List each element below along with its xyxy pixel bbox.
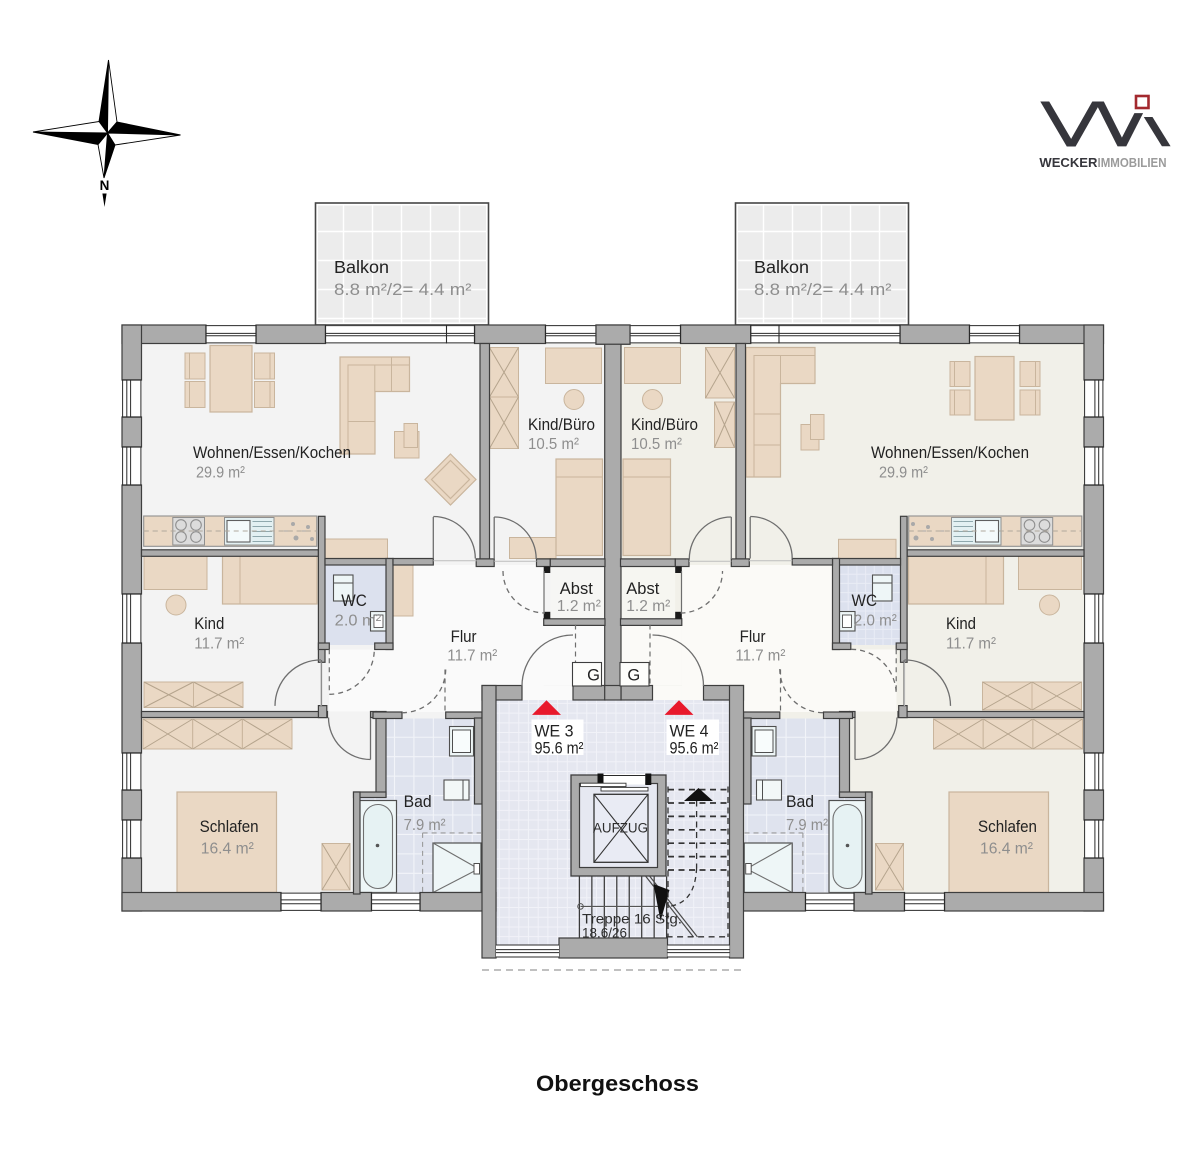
svg-text:AUFZUG: AUFZUG bbox=[593, 821, 648, 836]
svg-text:11.7 m²: 11.7 m² bbox=[194, 636, 245, 653]
svg-text:Schlafen: Schlafen bbox=[978, 818, 1037, 836]
svg-text:Wohnen/Essen/Kochen: Wohnen/Essen/Kochen bbox=[871, 444, 1029, 462]
svg-text:WC: WC bbox=[341, 592, 367, 610]
svg-text:Kind/Büro: Kind/Büro bbox=[528, 416, 595, 434]
svg-text:1.2 m²: 1.2 m² bbox=[557, 598, 602, 615]
svg-text:2.0 m²: 2.0 m² bbox=[854, 613, 898, 630]
svg-text:95.6 m²: 95.6 m² bbox=[535, 740, 584, 758]
svg-text:8.8 m²/2= 4.4 m²: 8.8 m²/2= 4.4 m² bbox=[334, 281, 472, 299]
svg-text:11.7 m²: 11.7 m² bbox=[447, 648, 498, 665]
svg-text:WECKER: WECKER bbox=[1039, 155, 1097, 170]
svg-text:Bad: Bad bbox=[404, 793, 432, 811]
svg-text:Balkon: Balkon bbox=[754, 257, 809, 277]
svg-text:Schlafen: Schlafen bbox=[200, 818, 259, 836]
svg-text:IMMOBILIEN: IMMOBILIEN bbox=[1098, 155, 1167, 170]
svg-text:10.5 m²: 10.5 m² bbox=[528, 436, 580, 453]
svg-text:29.9 m²: 29.9 m² bbox=[879, 465, 929, 482]
svg-text:Balkon: Balkon bbox=[334, 257, 389, 277]
svg-text:11.7 m²: 11.7 m² bbox=[735, 648, 786, 665]
svg-text:Wohnen/Essen/Kochen: Wohnen/Essen/Kochen bbox=[193, 444, 351, 462]
svg-text:WE 3: WE 3 bbox=[535, 723, 574, 741]
svg-text:Bad: Bad bbox=[786, 793, 814, 811]
svg-text:7.9 m²: 7.9 m² bbox=[786, 817, 829, 834]
svg-text:11.7 m²: 11.7 m² bbox=[946, 636, 997, 653]
svg-text:Abst: Abst bbox=[560, 580, 593, 598]
svg-text:G: G bbox=[587, 667, 600, 685]
svg-text:2.0 m²: 2.0 m² bbox=[335, 613, 382, 630]
svg-text:95.6 m²: 95.6 m² bbox=[670, 740, 719, 758]
svg-text:Kind: Kind bbox=[946, 615, 976, 633]
svg-text:7.9 m²: 7.9 m² bbox=[404, 817, 447, 834]
svg-text:16.4 m²: 16.4 m² bbox=[201, 841, 255, 858]
svg-text:Obergeschoss: Obergeschoss bbox=[536, 1071, 699, 1096]
svg-text:Flur: Flur bbox=[451, 628, 477, 646]
svg-text:Kind/Büro: Kind/Büro bbox=[631, 416, 698, 434]
svg-text:1.2 m²: 1.2 m² bbox=[626, 598, 671, 615]
svg-text:16.4 m²: 16.4 m² bbox=[980, 841, 1034, 858]
svg-text:N: N bbox=[100, 178, 110, 193]
svg-text:Flur: Flur bbox=[740, 628, 766, 646]
svg-text:29.9 m²: 29.9 m² bbox=[196, 465, 246, 482]
svg-text:Abst: Abst bbox=[626, 580, 659, 598]
svg-text:8.8 m²/2= 4.4 m²: 8.8 m²/2= 4.4 m² bbox=[754, 281, 892, 299]
svg-text:18.6/26: 18.6/26 bbox=[582, 926, 627, 941]
svg-text:10.5 m²: 10.5 m² bbox=[631, 436, 683, 453]
svg-text:Treppe 16 Stg.: Treppe 16 Stg. bbox=[582, 912, 682, 927]
svg-text:G: G bbox=[627, 667, 640, 685]
svg-text:WE 4: WE 4 bbox=[670, 723, 709, 741]
svg-text:Kind: Kind bbox=[194, 615, 224, 633]
svg-text:WC: WC bbox=[852, 592, 878, 610]
